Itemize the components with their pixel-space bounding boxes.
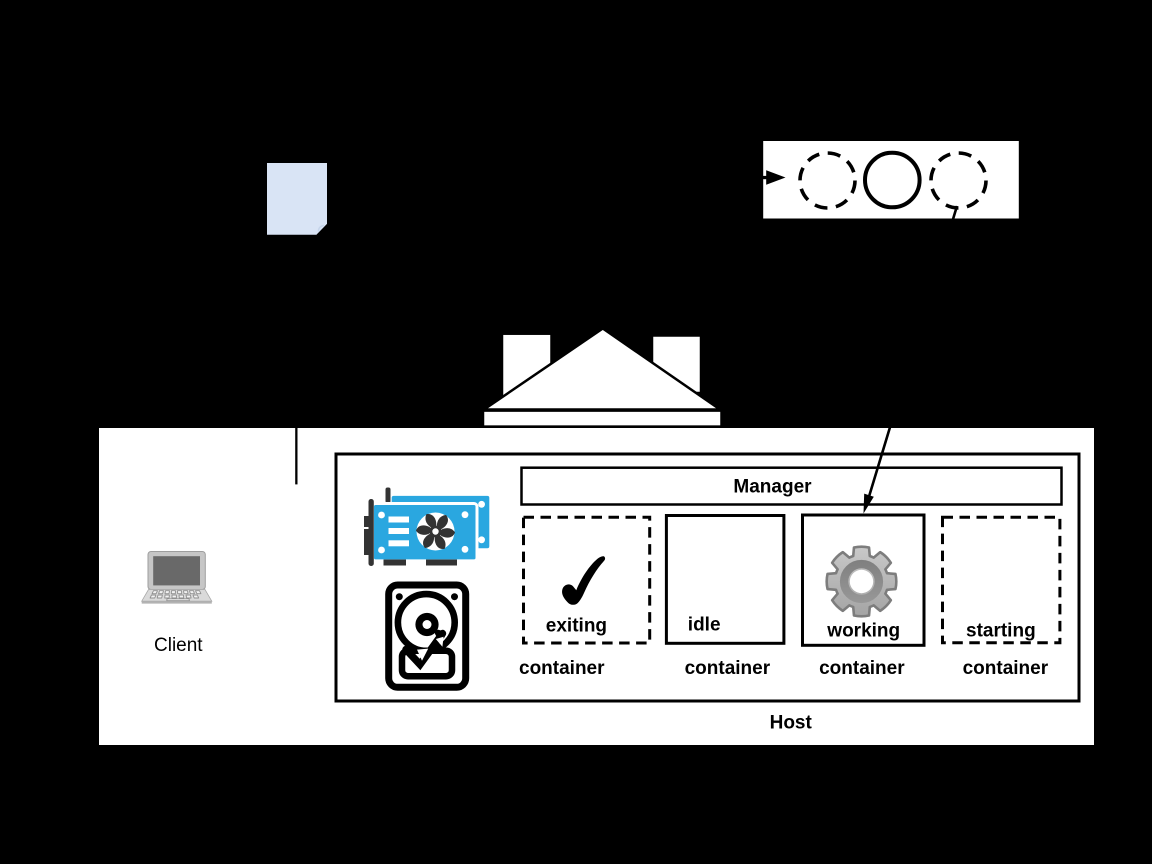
svg-text:container: container [819,658,905,679]
svg-text:starting: starting [966,620,1036,641]
svg-text:idle: idle [688,615,721,636]
svg-text:container: container [519,658,605,679]
svg-text:Client: Client [154,635,203,656]
svg-text:container: container [963,658,1049,679]
svg-text:container: container [685,658,771,679]
svg-text:working: working [826,620,900,641]
svg-text:Manager: Manager [733,476,812,497]
svg-text:exiting: exiting [546,616,607,637]
svg-text:Host: Host [770,712,813,733]
